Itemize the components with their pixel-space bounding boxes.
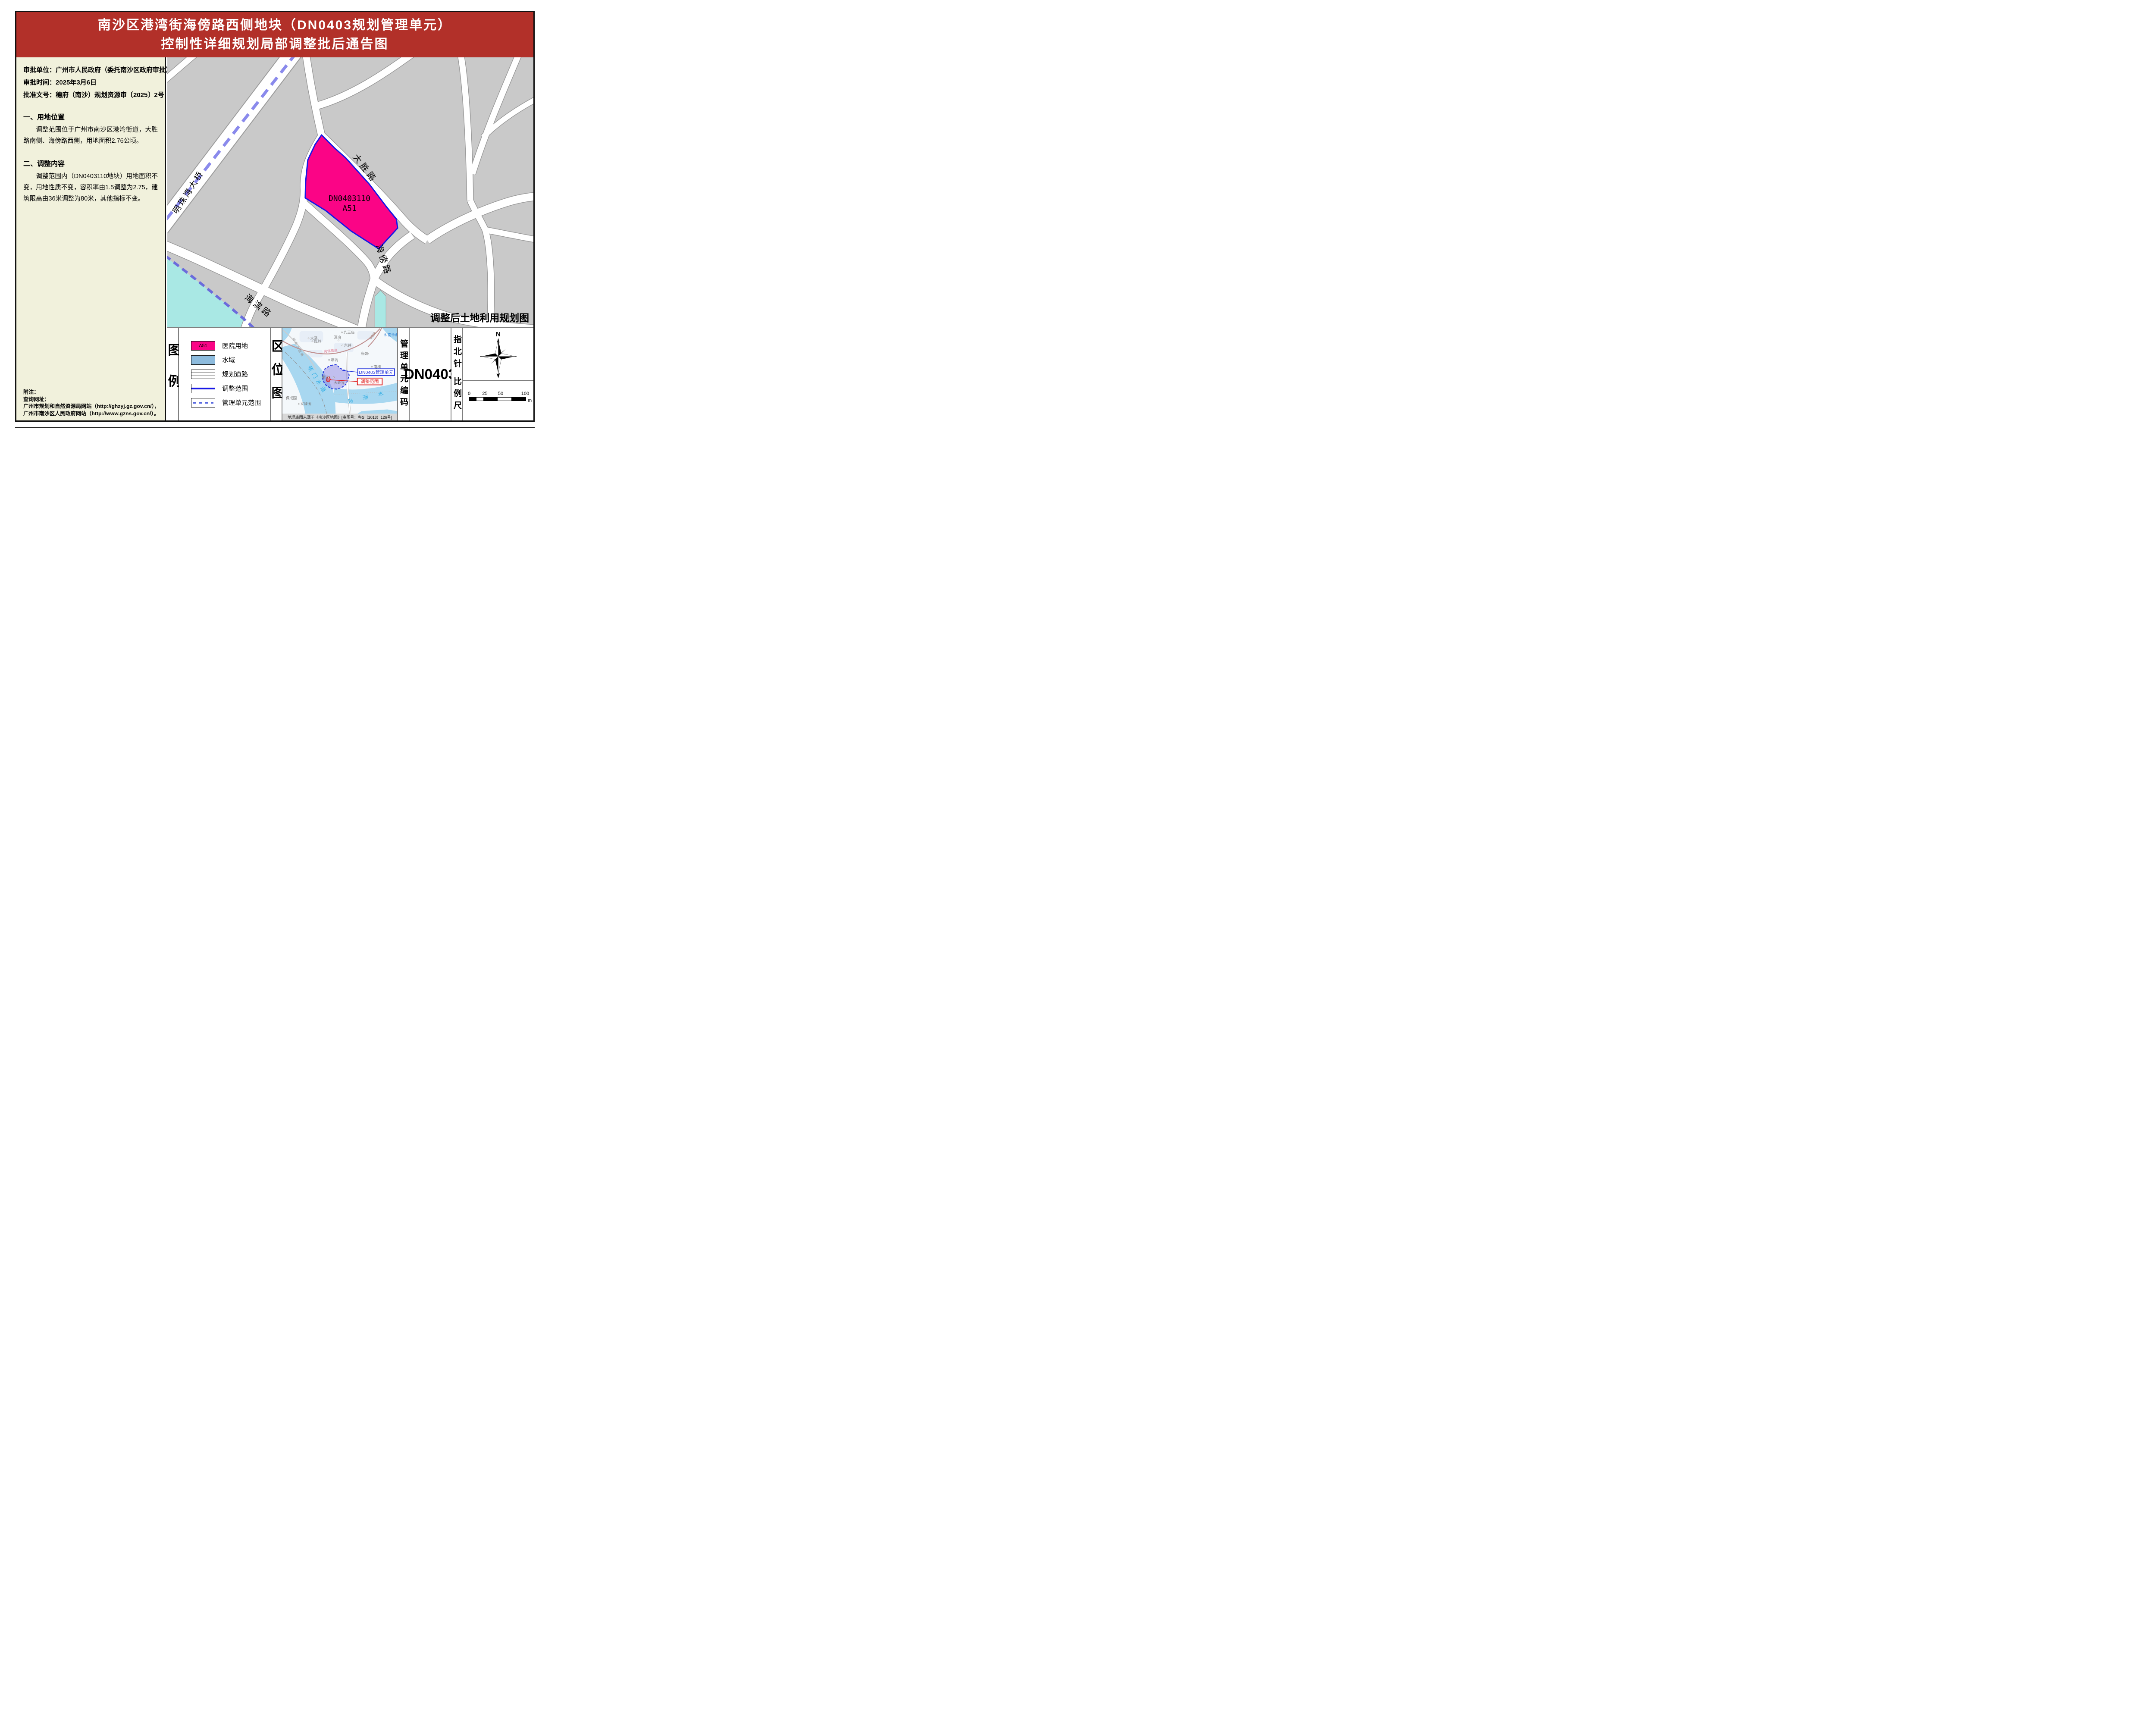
scalebar-labels: 0 25 50 100 (469, 391, 532, 397)
road-swatch (191, 370, 215, 379)
parcel-code-label: DN0403110 (329, 194, 370, 203)
footnotes: 附注： 查询网址： 广州市规划和自然资源局网站（http://ghzyj.gz.… (23, 389, 160, 417)
section2-title: 二、调整内容 (23, 158, 158, 168)
note-line3: 广州市规划和自然资源局网站（http://ghzyj.gz.gov.cn/）， (23, 403, 160, 410)
section2-body: 调整范围内（DN0403110地块）用地面积不变，用地性质不变，容积率由1.5调… (23, 171, 158, 204)
title-band: 南沙区港湾街海傍路西侧地块（DN0403规划管理单元） 控制性详细规划局部调整批… (16, 12, 533, 57)
legend-item-road: 规划道路 (191, 370, 270, 379)
parcel-use-label: A51 (342, 204, 356, 213)
map-caption: 调整后土地利用规划图 (430, 312, 529, 323)
place-dayong: 大涌 (310, 336, 318, 341)
legend-item-water: 水域 (191, 355, 270, 365)
north-arrow-icon: N (463, 328, 533, 380)
place-tangkeng: 塘坑 (331, 358, 338, 362)
compass-box: N (463, 328, 533, 381)
section1-title: 一、用地位置 (23, 111, 158, 122)
hospital-code: A51 (191, 342, 215, 350)
inset-caption: 地理底图来源于《南沙区地图》[审图号：粤S（2018）126号] (288, 415, 392, 420)
compass-heading: 指北针 (451, 335, 463, 371)
page-title-line1: 南沙区港湾街海傍路西侧地块（DN0403规划管理单元） (98, 16, 452, 35)
unit-code-value: DN0403 (404, 366, 456, 382)
anchor-icon: ⚓ (383, 333, 387, 337)
legend-item-scope: 调整范围 (191, 384, 270, 393)
legend-panel: A51 医院用地 水域 规划道路 调整范围 管 (179, 328, 271, 420)
legend-label-water: 水域 (222, 355, 235, 364)
scope-callout-label: 调整范围 (361, 379, 379, 385)
tick-50: 50 (498, 391, 503, 396)
water-swatch (191, 355, 215, 365)
scalebar: 0 25 50 100 m (469, 391, 532, 401)
port-label: 南沙港 (388, 333, 397, 337)
main-map: DN0403110 A51 大胜路 海傍路 海滨路 明珠湾大桥 调整后土地利用规… (167, 57, 533, 327)
compass-scale-cell: N (463, 328, 533, 420)
info-panel: 审批单位：广州市人民政府（委托南沙区政府审批） 审批时间：2025年3月6日 批… (16, 57, 166, 420)
legend-label-scope: 调整范围 (222, 384, 248, 393)
tick-100: 100 (521, 391, 529, 396)
legend-item-unit: 管理单元范围 (191, 398, 270, 407)
scalebar-box: 0 25 50 100 m (463, 381, 533, 420)
compass-scale-heading-cell: 指北针 比例尺 (451, 328, 463, 420)
scalebar-unit: m (528, 398, 532, 403)
sheet-bottom-rule (15, 427, 535, 428)
section1-body: 调整范围位于广州市南沙区港湾街道，大胜路南侧、海傍路西侧，用地面积2.76公顷。 (23, 124, 158, 147)
bottom-strip: 图例 A51 医院用地 水域 规划道路 (167, 327, 533, 420)
location-heading-cell: 区位图 (271, 328, 282, 420)
place-yilongwei: 义隆围 (301, 402, 311, 406)
note-line1: 附注： (23, 389, 160, 396)
scalebar-bar (469, 397, 526, 401)
legend-heading-cell: 图例 (167, 328, 179, 420)
notice-sheet: 南沙区港湾街海傍路西侧地块（DN0403规划管理单元） 控制性详细规划局部调整批… (0, 0, 539, 432)
tick-25: 25 (482, 391, 487, 396)
scope-swatch (191, 384, 215, 393)
place-dongjing: 东井 (344, 343, 351, 348)
legend-item-hospital: A51 医院用地 (191, 341, 270, 351)
approval-unit: 审批单位：广州市人民政府（委托南沙区政府审批） (23, 65, 158, 75)
approval-doc: 批准文号：穗府（南沙）规划资源审〔2025〕2号 (23, 90, 158, 100)
place-lujing: 鹿颈 (361, 351, 368, 356)
location-inset-map: DN0403管理单元 调整范围 九王庙 红岭 大涌 深湾 东井 塘坑 鹿颈 南横… (282, 328, 398, 420)
page-title-line2: 控制性详细规划局部调整批后通告图 (161, 35, 389, 54)
legend-label-hospital: 医院用地 (222, 341, 248, 350)
note-line4: 广州市南沙区人民政府网站（http://www.gzns.gov.cn/）。 (23, 410, 160, 417)
main-map-svg: DN0403110 A51 大胜路 海傍路 海滨路 明珠湾大桥 调整后土地利用规… (167, 57, 533, 327)
canal (375, 290, 386, 327)
north-letter: N (496, 331, 501, 338)
place-shenwan: 深湾 (334, 335, 341, 340)
note-line2: 查询网址： (23, 396, 160, 403)
hospital-swatch: A51 (191, 341, 215, 351)
place-baochengwei: 保成围 (286, 396, 297, 400)
legend-label-unit: 管理单元范围 (222, 398, 261, 407)
unit-callout-label: DN0403管理单元 (359, 370, 393, 375)
inset-svg: DN0403管理单元 调整范围 九王庙 红岭 大涌 深湾 东井 塘坑 鹿颈 南横… (282, 328, 397, 420)
place-jiuwangmiao: 九王庙 (344, 330, 354, 335)
tick-0: 0 (468, 391, 470, 396)
unit-swatch (191, 398, 215, 407)
place-dalingjie: 大岭界 (334, 381, 345, 385)
unit-code-cell: DN0403 (410, 328, 451, 420)
approval-time: 审批时间：2025年3月6日 (23, 78, 158, 88)
content-frame: 南沙区港湾街海傍路西侧地块（DN0403规划管理单元） 控制性详细规划局部调整批… (15, 11, 535, 422)
compass-petals (482, 340, 515, 373)
place-nanheng: 南横 (373, 364, 381, 369)
scalebar-heading: 比例尺 (451, 377, 463, 413)
legend-label-road: 规划道路 (222, 370, 248, 379)
